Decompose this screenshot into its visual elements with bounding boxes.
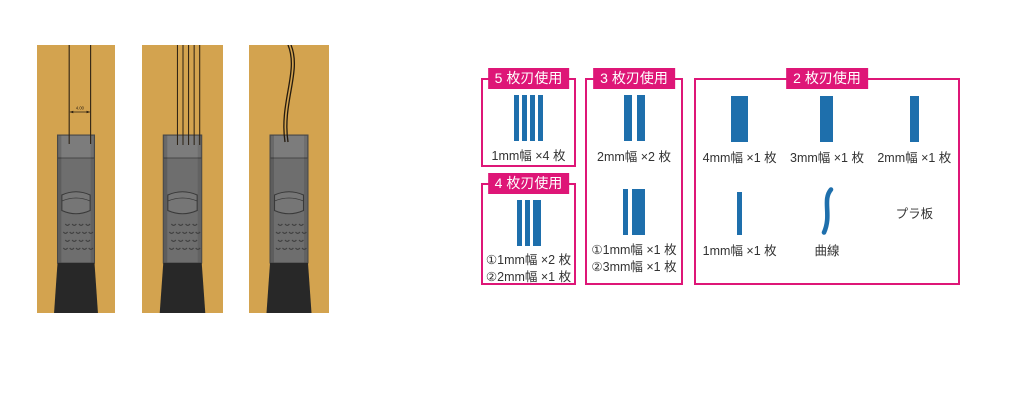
blade-spec-label: ②3mm幅 ×1 枚 xyxy=(587,259,681,276)
scribing-panel-curved-lines-drawing xyxy=(249,45,329,313)
usage-box-4-title-tab: 4 枚刃使用 xyxy=(488,173,570,194)
dimension-annotation: 4.00 xyxy=(69,105,90,113)
usage-box-5-blade: 5 枚刃使用 1mm幅 ×4 枚 xyxy=(481,78,576,167)
scriber-tool xyxy=(54,135,98,313)
blade-bar-1mm xyxy=(517,200,522,246)
blade-spec-label: 2mm幅 ×1 枚 xyxy=(877,150,951,167)
blade-bar-2mm xyxy=(533,200,541,246)
usage-box-2-title-tab: 2 枚刃使用 xyxy=(786,68,868,89)
blade-grid-2-blade: 4mm幅 ×1 枚 3mm幅 ×1 枚 2mm幅 ×1 枚 1mm幅 ×1 枚 xyxy=(696,80,958,260)
usage-box-3-title-tab: 3 枚刃使用 xyxy=(593,68,675,89)
blade-bars-4-blade xyxy=(483,200,574,246)
blade-spec-label: 2mm幅 ×2 枚 xyxy=(587,149,681,166)
scribing-panel-5-straight-lines xyxy=(142,45,223,313)
blade-bar-4mm xyxy=(731,96,748,142)
blade-cell-4mm: 4mm幅 ×1 枚 xyxy=(696,96,783,167)
blade-bar-3mm xyxy=(632,189,645,235)
scriber-tool xyxy=(267,135,312,313)
blade-bar-1mm xyxy=(530,95,535,141)
blade-bar-3mm xyxy=(820,96,833,142)
blade-bar-1mm xyxy=(623,189,628,235)
scriber-tool xyxy=(160,135,206,313)
blade-bar-2mm xyxy=(910,96,919,142)
blade-cell-curve: 曲線 xyxy=(783,189,870,260)
plastic-plate-cell: プラ板 xyxy=(871,189,958,260)
curve-line-icon xyxy=(819,187,835,235)
blade-spec-label: ②2mm幅 ×1 枚 xyxy=(483,269,574,286)
dimension-label: 4.00 xyxy=(76,105,85,110)
blade-cell-1mm: 1mm幅 ×1 枚 xyxy=(696,189,783,260)
usage-box-4-blade: 4 枚刃使用 ①1mm幅 ×2 枚 ②2mm幅 ×1 枚 xyxy=(481,183,576,285)
blade-bars-3-blade-top xyxy=(587,95,681,141)
blade-bars-3-blade-bottom xyxy=(587,189,681,235)
blade-spec-label: 1mm幅 ×4 枚 xyxy=(483,148,574,165)
blade-bar-2mm xyxy=(637,95,645,141)
blade-bar-1mm xyxy=(538,95,543,141)
scribing-panel-2-straight-lines-drawing: 4.00 xyxy=(37,45,115,313)
blade-spec-label: 1mm幅 ×1 枚 xyxy=(703,243,777,260)
blade-bar-1mm xyxy=(737,192,742,235)
scribing-panel-curved-lines xyxy=(249,45,329,313)
blade-spec-label: 3mm幅 ×1 枚 xyxy=(790,150,864,167)
blade-spec-label: 4mm幅 ×1 枚 xyxy=(703,150,777,167)
usage-box-3-blade: 3 枚刃使用 2mm幅 ×2 枚 ①1mm幅 ×1 枚 ②3mm幅 ×1 枚 xyxy=(585,78,683,285)
plastic-plate-label: プラ板 xyxy=(896,203,934,222)
blade-bar-1mm xyxy=(514,95,519,141)
blade-usage-instruction-figure: 4.00 5 枚刃使用 1mm幅 ×4 枚 xyxy=(0,0,1024,400)
blade-cell-3mm: 3mm幅 ×1 枚 xyxy=(783,96,870,167)
scribing-panel-2-straight-lines: 4.00 xyxy=(37,45,115,313)
blade-spec-label: ①1mm幅 ×1 枚 xyxy=(587,242,681,259)
blade-bar-1mm xyxy=(522,95,527,141)
blade-cell-2mm: 2mm幅 ×1 枚 xyxy=(871,96,958,167)
usage-box-2-blade: 2 枚刃使用 4mm幅 ×1 枚 3mm幅 ×1 枚 2mm幅 ×1 枚 1mm… xyxy=(694,78,960,285)
blade-spec-label: ①1mm幅 ×2 枚 xyxy=(483,252,574,269)
blade-bar-1mm xyxy=(525,200,530,246)
blade-bar-2mm xyxy=(624,95,632,141)
usage-box-5-title-tab: 5 枚刃使用 xyxy=(488,68,570,89)
blade-spec-label: 曲線 xyxy=(814,243,839,260)
scribing-panel-5-straight-lines-drawing xyxy=(142,45,223,313)
blade-bars-5-blade xyxy=(483,95,574,141)
